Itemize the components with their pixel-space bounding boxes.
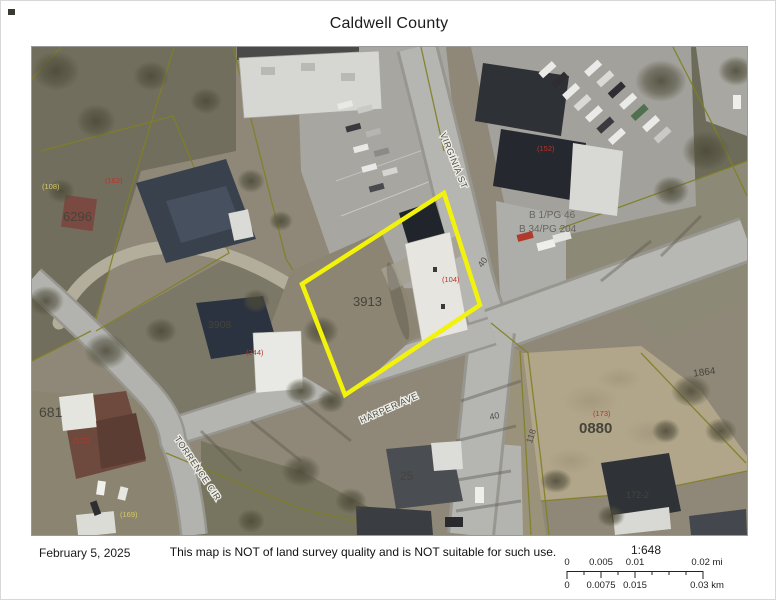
scale-km-tick: 0.015 bbox=[623, 580, 647, 591]
parcel-number-0880: 0880 bbox=[579, 420, 612, 437]
address-label: (244) bbox=[246, 348, 264, 357]
parcel-number-172-2: 172-2 bbox=[626, 490, 649, 500]
plat-reference: B 1/PG 46 bbox=[529, 210, 576, 221]
scale-km-tick: 0.03 km bbox=[690, 580, 724, 591]
scale-mi-tick: 0.005 bbox=[589, 557, 613, 568]
row-width-label: 40 bbox=[488, 410, 500, 422]
address-label: (173) bbox=[593, 409, 611, 418]
parcel-number-6296: 6296 bbox=[63, 209, 92, 224]
parcel-number-25: 25 bbox=[400, 469, 414, 483]
scale-ratio: 1:648 bbox=[631, 543, 661, 557]
scale-km-tick: 0 bbox=[564, 580, 569, 591]
map-document: Caldwell County bbox=[0, 0, 776, 600]
scale-km-tick: 0.0075 bbox=[586, 580, 615, 591]
plat-reference: B 34/PG 204 bbox=[519, 224, 577, 235]
scale-mi-tick: 0.01 bbox=[626, 557, 645, 568]
scale-bar: 1:648 0 0.005 0.01 0.02 mi 0 0.0075 0.01… bbox=[559, 543, 729, 595]
address-label: (108) bbox=[42, 182, 60, 191]
scale-ruler bbox=[559, 570, 719, 580]
address-label: (162) bbox=[105, 176, 123, 185]
page-title: Caldwell County bbox=[1, 15, 776, 33]
map-canvas: 3913 6296 3908 681 0880 25 172-2 1864 40… bbox=[31, 46, 748, 536]
scale-mi-tick: 0.02 mi bbox=[691, 557, 722, 568]
disclaimer-text: This map is NOT of land survey quality a… bbox=[170, 545, 556, 559]
parcel-number-681: 681 bbox=[39, 404, 63, 420]
scale-mi-tick: 0 bbox=[564, 557, 569, 568]
address-label: (152) bbox=[537, 144, 555, 153]
address-label: (172) bbox=[73, 436, 91, 445]
parcel-number-3913: 3913 bbox=[353, 294, 382, 309]
parcel-number-3908: 3908 bbox=[208, 319, 232, 331]
address-label: (104) bbox=[442, 275, 460, 284]
map-date: February 5, 2025 bbox=[39, 546, 130, 560]
address-label: (169) bbox=[120, 510, 138, 519]
